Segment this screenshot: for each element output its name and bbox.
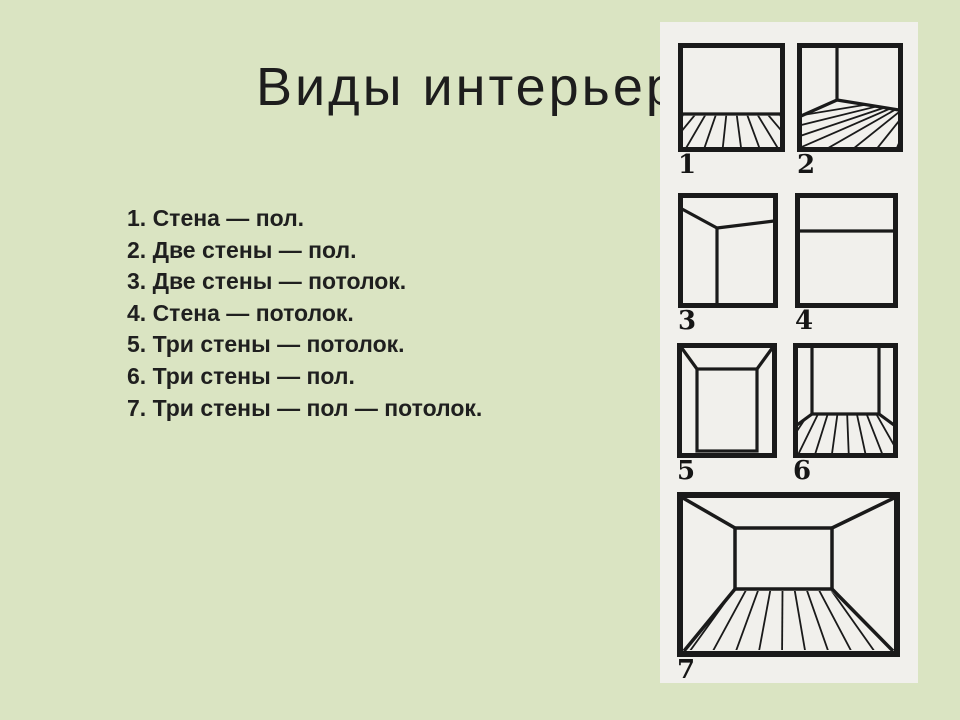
list-item: 1. Стена — пол. (127, 203, 482, 235)
figure-two-walls-ceiling: 3 (678, 193, 778, 334)
figure-number: 1 (678, 152, 785, 178)
two-walls-floor-drawing (797, 43, 903, 152)
list-item: 3. Две стены — потолок. (127, 266, 482, 298)
list-item: 5. Три стены — потолок. (127, 329, 482, 361)
list-item: 7. Три стены — пол — потолок. (127, 393, 482, 425)
figure-two-walls-floor: 2 (797, 43, 903, 178)
figure-number: 5 (677, 458, 777, 484)
figure-wall-floor: 1 (678, 43, 785, 178)
three-walls-ceiling-drawing (677, 343, 777, 458)
interior-diagrams-image: 1 2 (660, 22, 918, 683)
figure-three-walls-ceiling: 5 (677, 343, 777, 484)
three-walls-floor-ceiling-drawing (677, 492, 900, 657)
figure-number: 4 (795, 308, 898, 334)
list-item: 6. Три стены — пол. (127, 361, 482, 393)
figure-three-walls-floor: 6 (793, 343, 898, 484)
list-item: 2. Две стены — пол. (127, 235, 482, 267)
figure-number: 6 (793, 458, 898, 484)
figure-number: 3 (678, 308, 778, 334)
list-item: 4. Стена — потолок. (127, 298, 482, 330)
slide: Виды интерьера 1. Стена — пол. 2. Две ст… (0, 0, 960, 720)
figure-three-walls-floor-ceiling: 7 (677, 492, 900, 683)
interior-types-list: 1. Стена — пол. 2. Две стены — пол. 3. Д… (127, 203, 482, 424)
wall-ceiling-drawing (795, 193, 898, 308)
two-walls-ceiling-drawing (678, 193, 778, 308)
three-walls-floor-drawing (793, 343, 898, 458)
wall-floor-drawing (678, 43, 785, 152)
slide-title: Виды интерьера (256, 56, 712, 118)
figure-wall-ceiling: 4 (795, 193, 898, 334)
figure-number: 7 (677, 657, 900, 683)
figure-number: 2 (797, 152, 903, 178)
